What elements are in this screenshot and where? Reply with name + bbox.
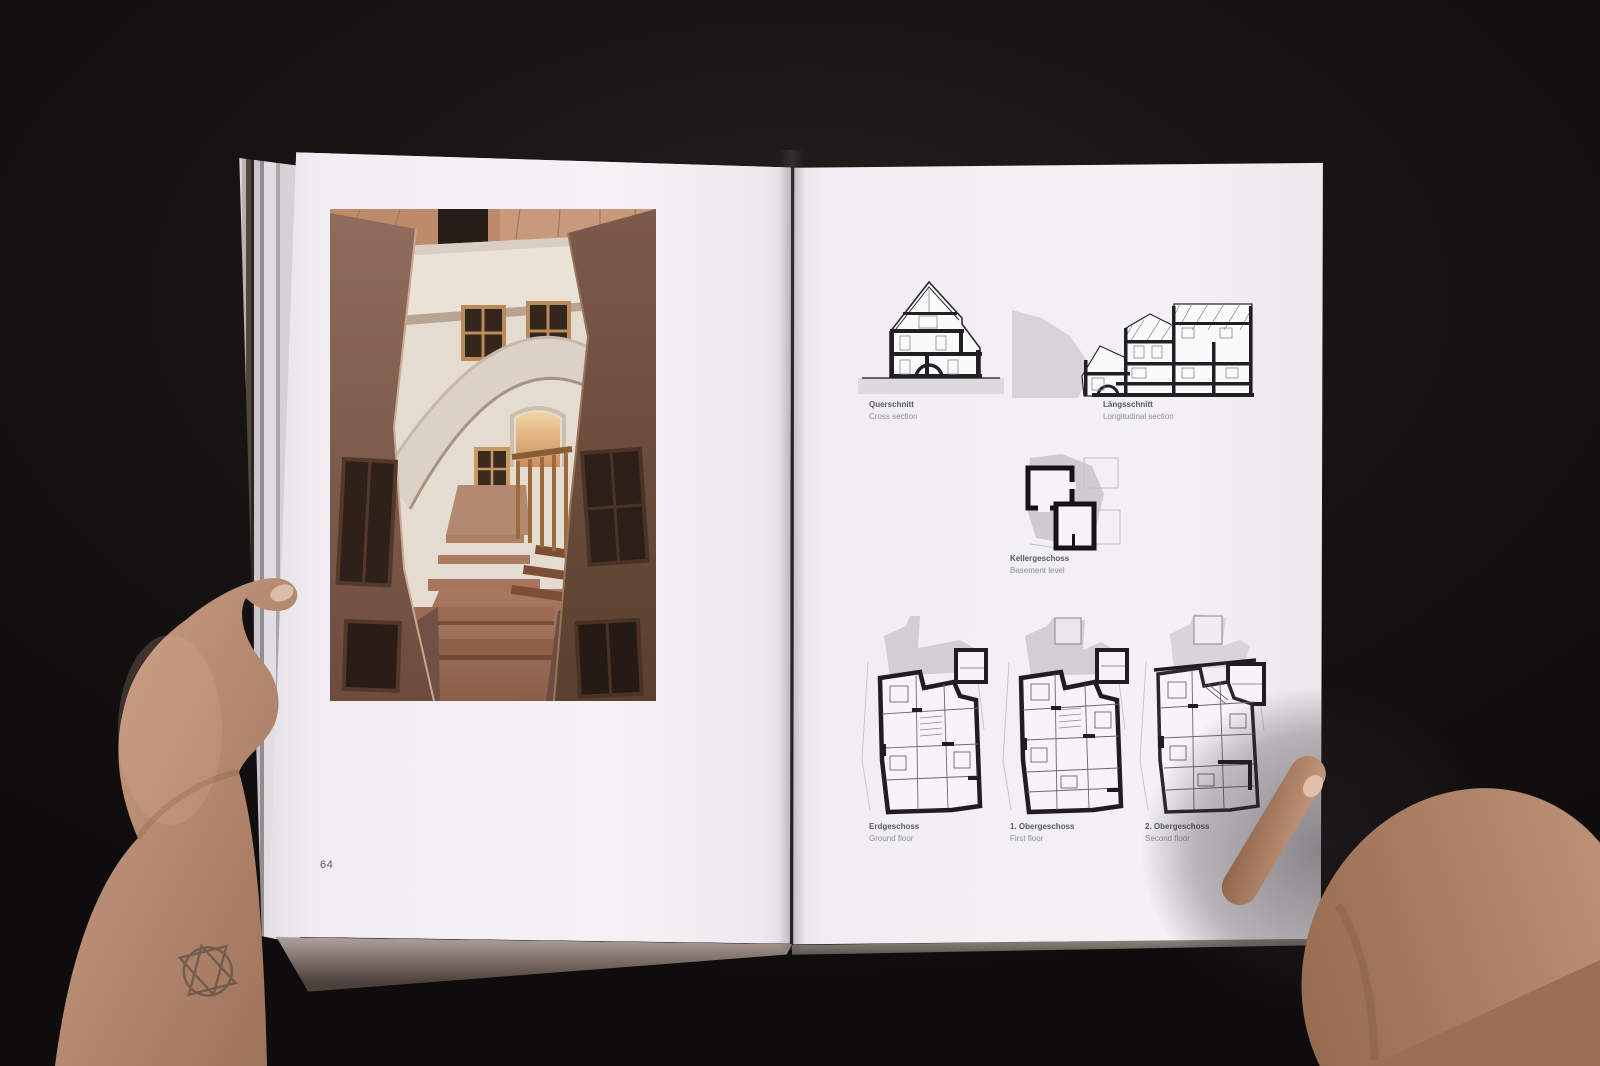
hand-shadow bbox=[1090, 640, 1550, 1060]
label-basement: Kellergeschoss Basement level bbox=[1010, 553, 1069, 577]
plan-outline bbox=[880, 672, 980, 812]
small-window bbox=[474, 447, 510, 491]
ground-floor-drawing bbox=[856, 610, 992, 816]
terrain-slope bbox=[1012, 310, 1092, 398]
book-gutter bbox=[779, 150, 805, 950]
cross-section-drawing bbox=[856, 272, 1006, 400]
alley-photograph bbox=[330, 209, 656, 701]
figure-ground-floor bbox=[856, 610, 992, 816]
photo-of-open-book: 64 Q bbox=[0, 0, 1600, 1066]
label-first-floor: 1. Obergeschoss First floor bbox=[1010, 821, 1074, 845]
basement-drawing bbox=[1000, 446, 1128, 552]
label-longitudinal-section: Längsschnitt Longitudinal section bbox=[1103, 399, 1174, 423]
page-number-left: 64 bbox=[320, 859, 333, 871]
figure-basement bbox=[1000, 446, 1128, 552]
page-number-right: 65 bbox=[1247, 864, 1260, 876]
attic-window bbox=[438, 209, 488, 245]
figure-longitudinal-section bbox=[1012, 276, 1262, 398]
label-cross-section: Querschnitt Cross section bbox=[869, 399, 917, 423]
longitudinal-section-drawing bbox=[1012, 276, 1262, 398]
figure-cross-section bbox=[856, 272, 1006, 400]
label-ground-floor: Erdgeschoss Ground floor bbox=[869, 821, 919, 845]
